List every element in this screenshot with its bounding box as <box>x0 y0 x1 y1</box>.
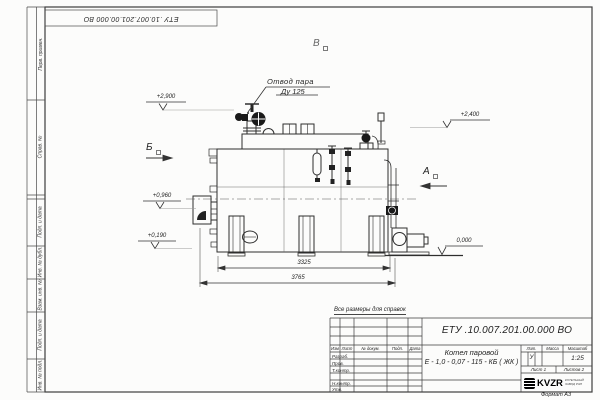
dimension-3325: 3325 <box>284 260 324 266</box>
margin-label-inv-dubl: Инв. № дубл. <box>36 246 46 279</box>
col-header-doc: № докум. <box>354 346 387 352</box>
drawing-sheet: ЕТУ .10.007.201.00.000 ВО Перв. примен. … <box>0 0 600 400</box>
view-label-b: Б <box>146 142 153 153</box>
margin-columns <box>27 7 217 392</box>
sheets-label: Листов <box>564 367 580 372</box>
kvzr-logo-text: KVZR <box>537 378 563 389</box>
col-header-list: Лист <box>340 346 354 352</box>
lit-header: Лит. <box>521 346 542 352</box>
lit-value: У <box>521 355 542 361</box>
right-top-fittings <box>360 113 385 149</box>
mass-header: Масса <box>542 346 563 352</box>
title-doc-number: ЕТУ .10.007.201.00.000 ВО <box>424 320 590 342</box>
view-label-v: В <box>313 38 320 49</box>
manufacturer-logo: KVZR КОТЕЛЬНЫЙ ЗАВОД РЭП <box>524 375 590 391</box>
margin-label-podp-data-upper: Подп. и дата <box>36 199 46 246</box>
view-ref-mark <box>433 174 438 179</box>
elevation-0190: +0,190 <box>135 233 179 239</box>
margin-label-inv-podl: Инв. № подл. <box>36 359 46 392</box>
col-header-data: Дата <box>408 346 422 352</box>
logo-sub-line2: ЗАВОД РЭП <box>565 383 584 387</box>
burner-fan-shape <box>197 211 206 220</box>
dimension-3765: 3765 <box>278 275 318 281</box>
row-label-utv: Утв. <box>332 386 342 393</box>
scale-header: Масштаб <box>563 346 592 352</box>
sheets-value: 2 <box>582 367 585 372</box>
sheet-number: Лист 1 <box>521 367 556 372</box>
scale-value: 1:25 <box>563 355 592 362</box>
view-label-a: А <box>423 166 430 177</box>
level-gauges <box>313 146 352 185</box>
view-ref-mark <box>323 46 328 51</box>
elevation-0960: +0,960 <box>140 193 184 199</box>
view-ref-mark <box>156 150 161 155</box>
top-stamp-doc-number: ЕТУ .10.007.201.00.000 ВО <box>45 10 217 26</box>
col-header-podp: Подп. <box>387 346 408 352</box>
downcomer-pipe <box>384 160 399 228</box>
callout-steam-outlet: Отвод пара <box>267 77 314 86</box>
kvzr-logo-subtext: КОТЕЛЬНЫЙ ЗАВОД РЭП <box>565 379 584 386</box>
fan-unit <box>389 228 429 255</box>
margin-label-vzam-inv: Взам. инв. № <box>36 279 46 312</box>
format-label: Формат А3 <box>520 392 592 398</box>
sheets-total: Листов 2 <box>556 367 592 372</box>
sheet-label: Лист <box>531 367 543 372</box>
margin-label-sprav-no: Справ. № <box>36 100 46 195</box>
row-label-razrab: Разраб. <box>332 353 348 360</box>
elevation-2400: +2,400 <box>448 112 492 118</box>
support-legs <box>228 216 385 256</box>
product-name-line2: Е - 1,0 - 0,07 - 115 - КБ ( ЖК ) <box>422 359 521 366</box>
margin-label-podp-data-lower: Подп. и дата <box>36 312 46 359</box>
callout-du125: Ду 125 <box>281 87 305 96</box>
sheet-value: 1 <box>544 367 547 372</box>
view-arrows <box>146 155 447 189</box>
product-name-line1: Котел паровой <box>422 348 521 357</box>
elevation-zero: 0,000 <box>442 238 486 244</box>
reference-note: Все размеры для справок <box>334 307 406 315</box>
row-label-prov: Пров. <box>332 360 344 367</box>
elevation-2900: +2,900 <box>144 94 188 100</box>
row-label-tkontr: Т.контр. <box>332 367 350 374</box>
col-header-izm: Изм <box>330 346 340 352</box>
dome <box>263 129 274 134</box>
margin-label-perv-primen: Перв. примен. <box>36 8 46 100</box>
boiler-side-view <box>193 104 463 256</box>
kvzr-logo-icon <box>524 378 535 389</box>
